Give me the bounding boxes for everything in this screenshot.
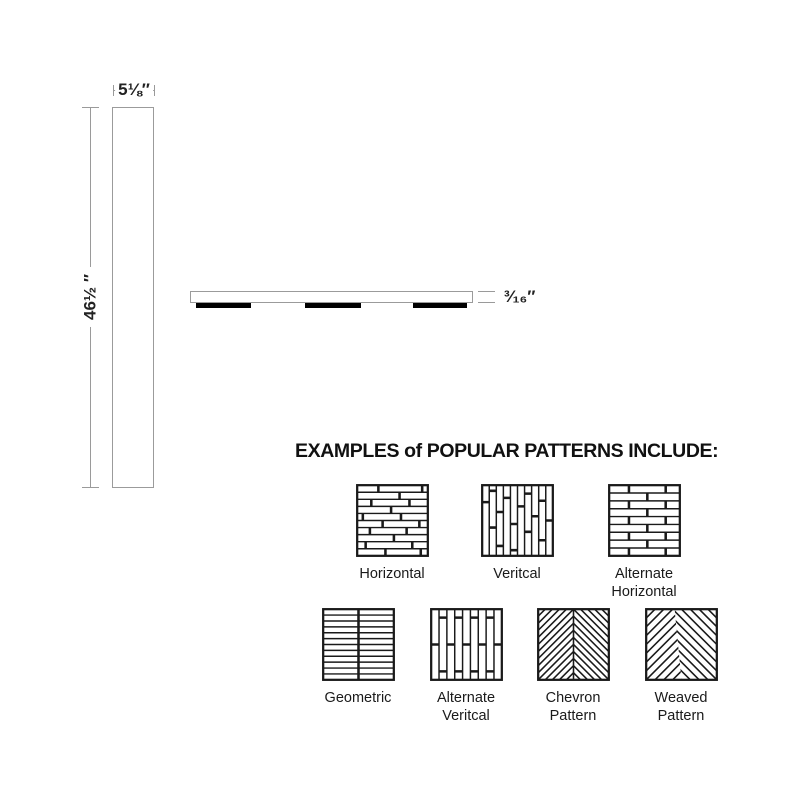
height-dimension-tick-top xyxy=(82,107,99,108)
side-view-pad xyxy=(305,303,361,308)
pattern-cell-alt-horizontal: Alternate Horizontal xyxy=(589,484,699,601)
height-dimension-label: 46½ ″ xyxy=(82,267,99,327)
pattern-cell-chevron: Chevron Pattern xyxy=(518,608,628,725)
thickness-dimension-tick-bottom xyxy=(478,302,495,303)
side-view-pad xyxy=(196,303,251,308)
pattern-swatch-weaved xyxy=(626,608,736,681)
pattern-label: Chevron Pattern xyxy=(527,689,619,725)
pattern-label: Horizontal xyxy=(346,565,438,583)
pattern-cell-weaved: Weaved Pattern xyxy=(626,608,736,725)
side-view-pad xyxy=(413,303,467,308)
plank-spec-diagram: 5⅛″ 46½ ″ ³⁄₁₆″ EXAMPLES of POPULAR PATT… xyxy=(0,0,800,800)
width-dimension-label: 5⅛″ xyxy=(115,81,153,98)
width-dimension-tick-right xyxy=(154,85,155,96)
side-view-plank xyxy=(190,291,473,303)
pattern-swatch-vertical xyxy=(462,484,572,557)
pattern-swatch-alt-vertical xyxy=(411,608,521,681)
pattern-label: Geometric xyxy=(312,689,404,707)
pattern-cell-horizontal: Horizontal xyxy=(337,484,447,583)
pattern-label: Weaved Pattern xyxy=(635,689,727,725)
pattern-cell-alt-vertical: Alternate Veritcal xyxy=(411,608,521,725)
pattern-cell-vertical: Veritcal xyxy=(462,484,572,583)
patterns-title: EXAMPLES of POPULAR PATTERNS INCLUDE: xyxy=(295,440,715,463)
height-dimension-tick-bottom xyxy=(82,487,99,488)
front-view-plank xyxy=(112,107,154,488)
pattern-swatch-horizontal xyxy=(337,484,447,557)
pattern-label: Alternate Horizontal xyxy=(598,565,690,601)
thickness-dimension-tick-top xyxy=(478,291,495,292)
pattern-label: Veritcal xyxy=(471,565,563,583)
pattern-swatch-alt-horizontal xyxy=(589,484,699,557)
thickness-dimension-label: ³⁄₁₆″ xyxy=(501,288,538,305)
pattern-label: Alternate Veritcal xyxy=(420,689,512,725)
pattern-swatch-chevron xyxy=(518,608,628,681)
pattern-cell-geometric: Geometric xyxy=(303,608,413,707)
width-dimension-tick-left xyxy=(113,85,114,96)
pattern-swatch-geometric xyxy=(303,608,413,681)
